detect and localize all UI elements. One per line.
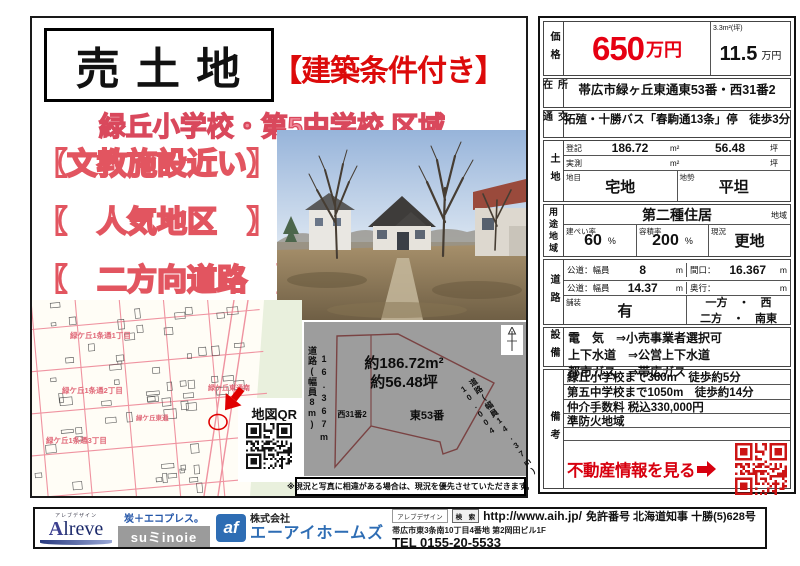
alreve-triangle-icon: A — [49, 518, 63, 540]
road1-width: 8 — [612, 263, 674, 277]
map-label: 緑ケ丘1条通3丁目 — [46, 435, 107, 445]
per-tsubo-unit: 万円 — [761, 47, 781, 62]
property-photo-image — [277, 130, 526, 320]
zone-suffix: 地域 — [771, 210, 787, 221]
map-label: 緑ケ丘1条通1丁目 — [70, 330, 131, 340]
spec-table: 価格 650 万円 3.3m²(坪) 11.5 万円 所在 帯広市緑ヶ丘東通東5… — [538, 16, 796, 494]
terrain-value: 平坦 — [719, 176, 749, 197]
company-address: 帯広市東3条南10丁目4番地 第2岡田ビル1F — [392, 525, 760, 536]
depth-cell: 奥行： m — [686, 282, 790, 294]
location-row: 所在 帯広市緑ヶ丘東通東53番・西31番2 — [543, 78, 791, 108]
note-blank — [564, 428, 790, 441]
per-tsubo-caption: 3.3m²(坪) — [711, 22, 790, 33]
utilities-section: 設備 電 気 ⇒小売事業者選択可 上下水道 ⇒公営上下水道 都市ガス ⇒帯広ガス — [543, 327, 791, 367]
land-section: 土地 登記 186.72 m² 56.48 坪 実測 m² 坪 — [543, 140, 791, 202]
suminoie-logo: 炭＋エコプレス。 suミinoie — [118, 510, 210, 547]
utility-water: 上下水道 ⇒公営上下水道 — [568, 346, 790, 363]
paving-value: 有 — [617, 300, 632, 321]
tsubo-unit: 坪 — [770, 143, 790, 154]
frontage-cell: 間口： 16.367 m — [686, 263, 790, 277]
map-label: 緑ケ丘東通 — [136, 413, 169, 422]
registered-m2: 186.72 — [590, 141, 670, 155]
arrow-right-icon — [697, 461, 716, 477]
zoning-section-label: 用途地域 — [544, 205, 564, 256]
lot-number-west: 西31番2 — [337, 409, 367, 419]
m2-unit: m² — [670, 159, 690, 168]
feature-label-popular-area: 【 人気地区 】 — [37, 197, 277, 241]
map-label: 緑ケ丘1条通2丁目 — [62, 385, 123, 395]
road2-width: 14.37 — [612, 281, 674, 295]
measured-label: 実測 — [564, 158, 590, 169]
title-box: 売 土 地 — [44, 28, 274, 102]
footer-bar: アレブデザイン Alreve 炭＋エコプレス。 suミinoie af 株式会社… — [33, 507, 767, 549]
lot-area-tsubo: 約56.48坪 — [370, 373, 438, 391]
eco-press-tagline: 炭＋エコプレス。 — [118, 510, 210, 525]
note-fire-zone: 準防火地域 — [564, 414, 790, 428]
road-label-west: 道路(幅員8m) — [306, 346, 319, 430]
compass-icon — [501, 325, 523, 355]
area-map: 緑ケ丘1条通1丁目 緑ケ丘1条通2丁目 緑ケ丘1条通3丁目 緑ケ丘東通南 緑ケ丘… — [32, 300, 302, 496]
frontage-west: 16.367m — [319, 354, 329, 445]
lot-number-east: 東53番 — [410, 408, 445, 422]
m2-unit: m² — [670, 144, 690, 153]
page-title: 売 土 地 — [76, 33, 242, 97]
condition-badge: 【建築条件付き】 — [272, 46, 504, 90]
company-name: エーアイホームズ — [250, 525, 384, 542]
property-info-qr-code — [735, 443, 787, 495]
bcr-cell: 建ぺい率 60 % — [564, 225, 636, 256]
frontage-value: 16.367 — [718, 263, 778, 277]
license-number: 免許番号 北海道知事 十勝(5)628号 — [586, 508, 756, 524]
suminoie-wordmark: suミinoie — [118, 526, 210, 547]
feature-label-education: 【文教施設近い】 — [37, 139, 277, 183]
notes-section-label: 備考 — [544, 370, 564, 488]
price-row-label: 価格 — [544, 22, 564, 75]
info-cta-text: 不動産情報を見る — [567, 457, 695, 481]
terrain-label: 地勢 — [680, 172, 695, 183]
company-prefix: 株式会社 — [250, 514, 384, 525]
price-value: 650 万円 — [564, 22, 710, 75]
alreve-swoosh-icon — [40, 540, 112, 545]
search-button-graphic: 検 索 — [452, 509, 480, 523]
land-section-label: 土地 — [544, 141, 564, 201]
price-number: 650 — [592, 30, 644, 68]
paving-cell: 舗装 有 — [564, 296, 686, 324]
access-row-label: 交通 — [544, 111, 564, 137]
zoning-section: 用途地域 第二種住居 地域 建ぺい率 60 % 容積率 200 % — [543, 204, 791, 257]
land-category-cell: 地目 宅地 — [564, 171, 677, 201]
category-value: 宅地 — [605, 176, 635, 197]
contact-block: アレブデザイン 検 索 http://www.aih.jp/ 免許番号 北海道知… — [390, 508, 760, 549]
registered-tsubo: 56.48 — [690, 141, 770, 155]
price-unit: 万円 — [646, 36, 682, 62]
notes-section: 備考 緑丘小学校まで360m 徒歩約5分 第五中学校まで1050m 徒歩約14分… — [543, 369, 791, 489]
direction-1: 一方 ・ 西 — [687, 294, 790, 310]
photo-disclaimer: ※現況と写真に相違がある場合は、現況を優先させていただきます。 — [295, 477, 526, 496]
alreve-logo: アレブデザイン Alreve — [40, 512, 112, 545]
far-cell: 容積率 200 % — [636, 225, 708, 256]
status-value: 更地 — [734, 230, 764, 251]
registered-label: 登記 — [564, 143, 590, 154]
access-value: 拓殖・十勝バス「春駒通13条」停 徒歩3分 — [564, 111, 790, 137]
road-section-label: 道路 — [544, 260, 564, 324]
flyer-page: 売 土 地 【建築条件付き】 緑丘小学校・第5中学校 区域 【文教施設近い】 【… — [0, 0, 800, 566]
lot-shape: 約186.72m² 約56.48坪 東53番 西31番2 — [304, 322, 526, 476]
lot-area-m2: 約186.72m² — [364, 354, 443, 372]
phone-number: TEL 0155-20-5533 — [392, 536, 760, 549]
per-tsubo-number: 11.5 — [720, 43, 758, 66]
utilities-section-label: 設備 — [544, 328, 564, 366]
feature-label-two-roads: 【 二方向道路 】 — [37, 255, 307, 299]
status-cell: 現況 更地 — [708, 225, 790, 256]
zone-name: 第二種住居 — [642, 205, 712, 225]
direction-cell: 一方 ・ 西 二方 ・ 南東 — [686, 296, 790, 324]
location-value: 帯広市緑ヶ丘東通東53番・西31番2 — [564, 79, 790, 107]
price-per-tsubo: 3.3m²(坪) 11.5 万円 — [710, 22, 790, 75]
main-flyer-panel: 売 土 地 【建築条件付き】 緑丘小学校・第5中学校 区域 【文教施設近い】 【… — [30, 16, 528, 498]
map-qr-code — [244, 421, 294, 471]
road1-cell: 公道：幅員 8 m — [564, 263, 686, 277]
ai-homes-logo: af 株式会社 エーアイホームズ — [216, 514, 384, 542]
property-photo — [277, 130, 526, 320]
af-mark-icon: af — [216, 514, 246, 542]
road2-cell: 公道：幅員 14.37 m — [564, 281, 686, 295]
price-row: 価格 650 万円 3.3m²(坪) 11.5 万円 — [543, 21, 791, 76]
location-row-label: 所在 — [544, 79, 564, 107]
search-keyword-box: アレブデザイン — [392, 509, 448, 523]
direction-2: 二方 ・ 南東 — [687, 310, 790, 326]
note-elementary: 緑丘小学校まで360m 徒歩約5分 — [564, 370, 790, 385]
alreve-wordmark: Alreve — [40, 519, 112, 539]
tsubo-unit: 坪 — [770, 158, 790, 169]
access-row: 交通 拓殖・十勝バス「春駒通13条」停 徒歩3分 — [543, 110, 791, 138]
road-section: 道路 公道：幅員 8 m 間口： 16.367 m 公 — [543, 259, 791, 325]
lot-diagram: 約186.72m² 約56.48坪 東53番 西31番2 道路(幅員8m) 16… — [304, 322, 526, 476]
land-terrain-cell: 地勢 平坦 — [677, 171, 791, 201]
category-label: 地目 — [566, 172, 581, 183]
info-cta-row: 不動産情報を見る — [564, 441, 790, 497]
utility-electric: 電 気 ⇒小売事業者選択可 — [568, 329, 790, 346]
website-url: http://www.aih.jp/ — [483, 509, 582, 523]
